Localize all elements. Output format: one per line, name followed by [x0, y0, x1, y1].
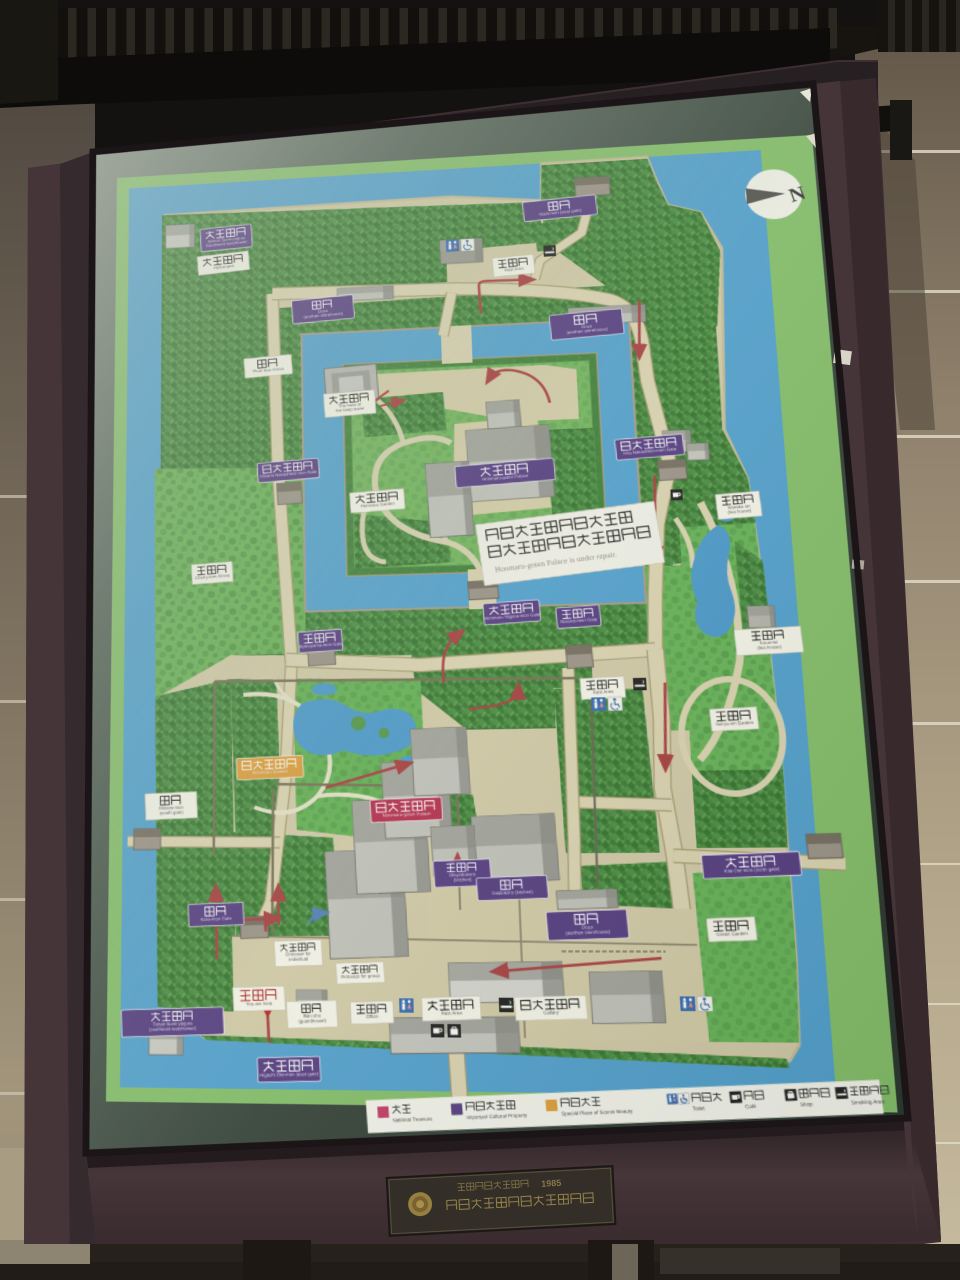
svg-text:1985: 1985 [541, 1178, 562, 1189]
